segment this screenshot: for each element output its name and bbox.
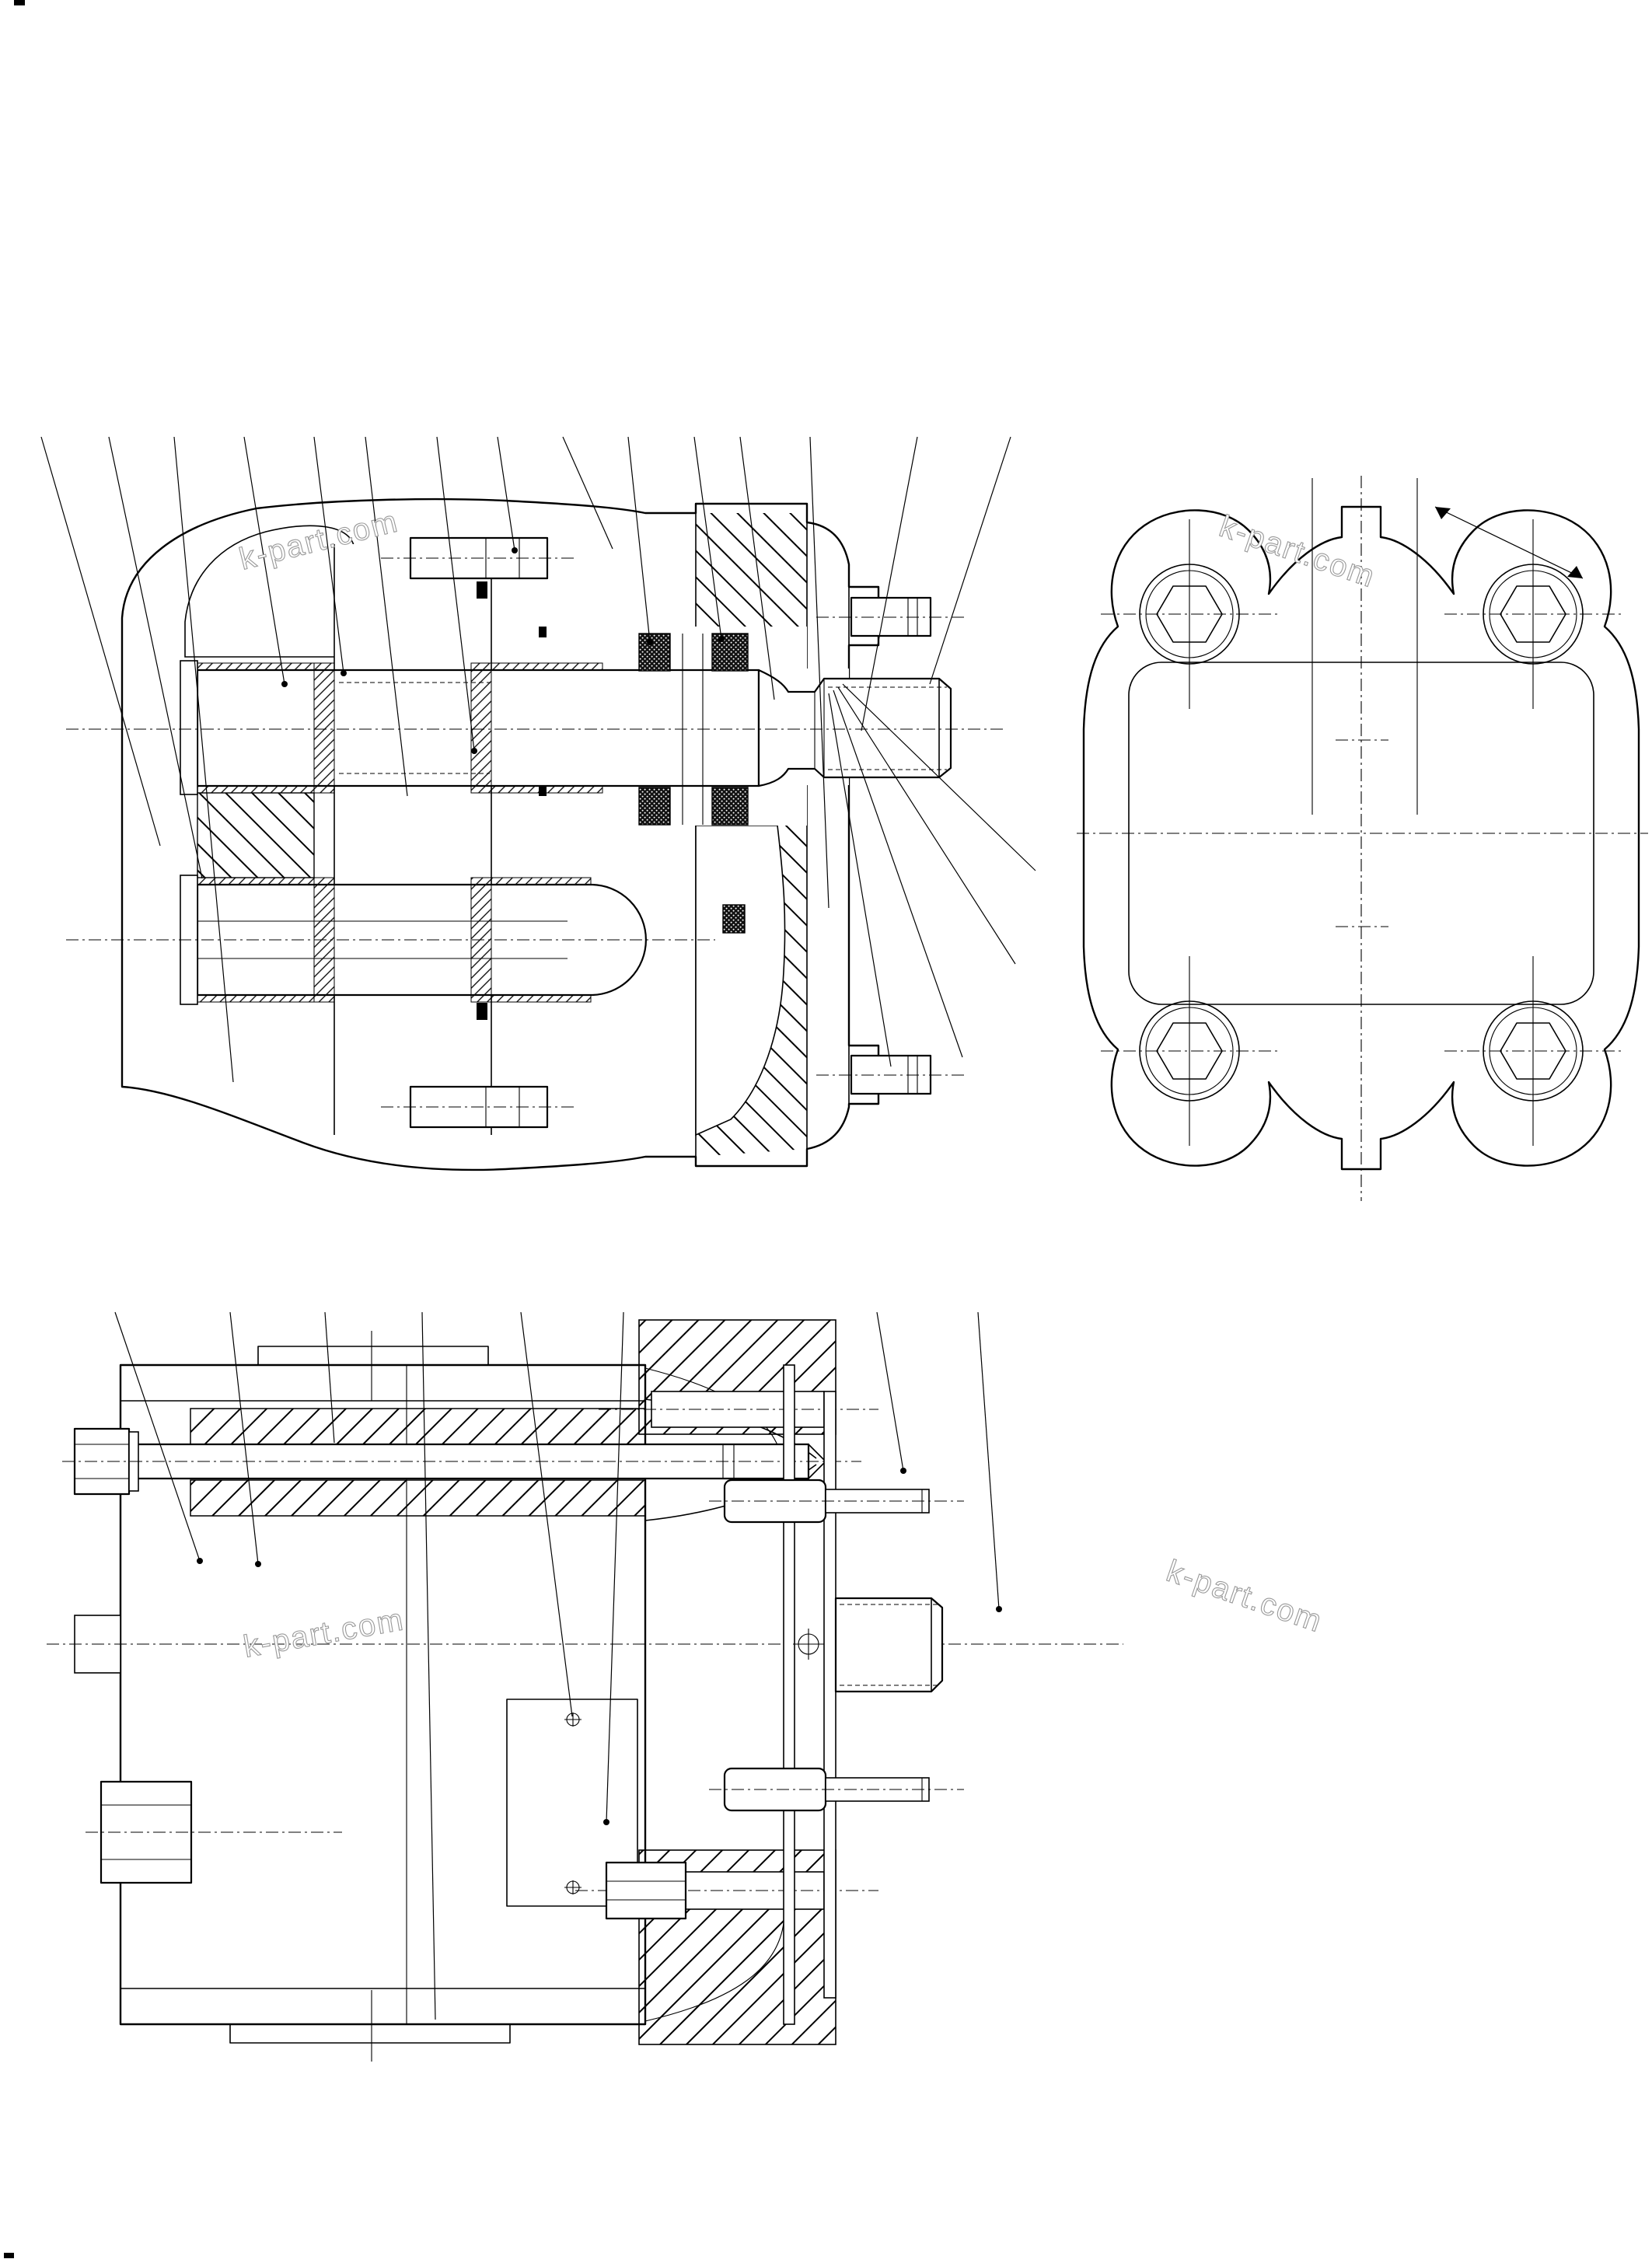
registration-mark-top-left xyxy=(14,0,25,5)
socket-bolt-top xyxy=(709,1480,964,1522)
cap-screw-top xyxy=(381,538,575,578)
side-view xyxy=(47,1312,1123,2062)
watermark: k-part.com xyxy=(1162,1554,1327,1639)
dimension-leader xyxy=(1435,507,1583,578)
shaft-washer xyxy=(180,661,197,794)
bearing-block xyxy=(197,793,314,878)
watermark: k-part.com xyxy=(241,1602,407,1664)
registration-mark-bottom-left xyxy=(4,2253,14,2258)
registration-marks xyxy=(4,0,25,2258)
hex-socket-bolt xyxy=(1101,956,1278,1146)
name-plate-screw xyxy=(564,1880,582,1894)
top-tab xyxy=(258,1346,488,1365)
socket-bolt-bottom xyxy=(709,1768,964,1810)
flange-bolt-top xyxy=(816,598,964,636)
section-view xyxy=(41,437,1036,1170)
drawing-sheet: k-part.com k-part.com k-part.com k-part.… xyxy=(0,0,1652,2259)
name-plate-screw xyxy=(564,1713,582,1727)
bottom-tab xyxy=(230,2024,510,2043)
watermark: k-part.com xyxy=(1215,509,1380,595)
hex-socket-bolt xyxy=(1444,956,1622,1146)
lower-left-bolt-head xyxy=(86,1782,342,1883)
hex-socket-bolt xyxy=(1444,519,1622,709)
hex-bolt-lower xyxy=(606,1863,686,1919)
cap-screw-bottom xyxy=(381,1087,575,1127)
gear-chamber xyxy=(334,544,491,1135)
threaded-port-stub xyxy=(836,1598,942,1692)
center-mark xyxy=(793,1629,824,1660)
